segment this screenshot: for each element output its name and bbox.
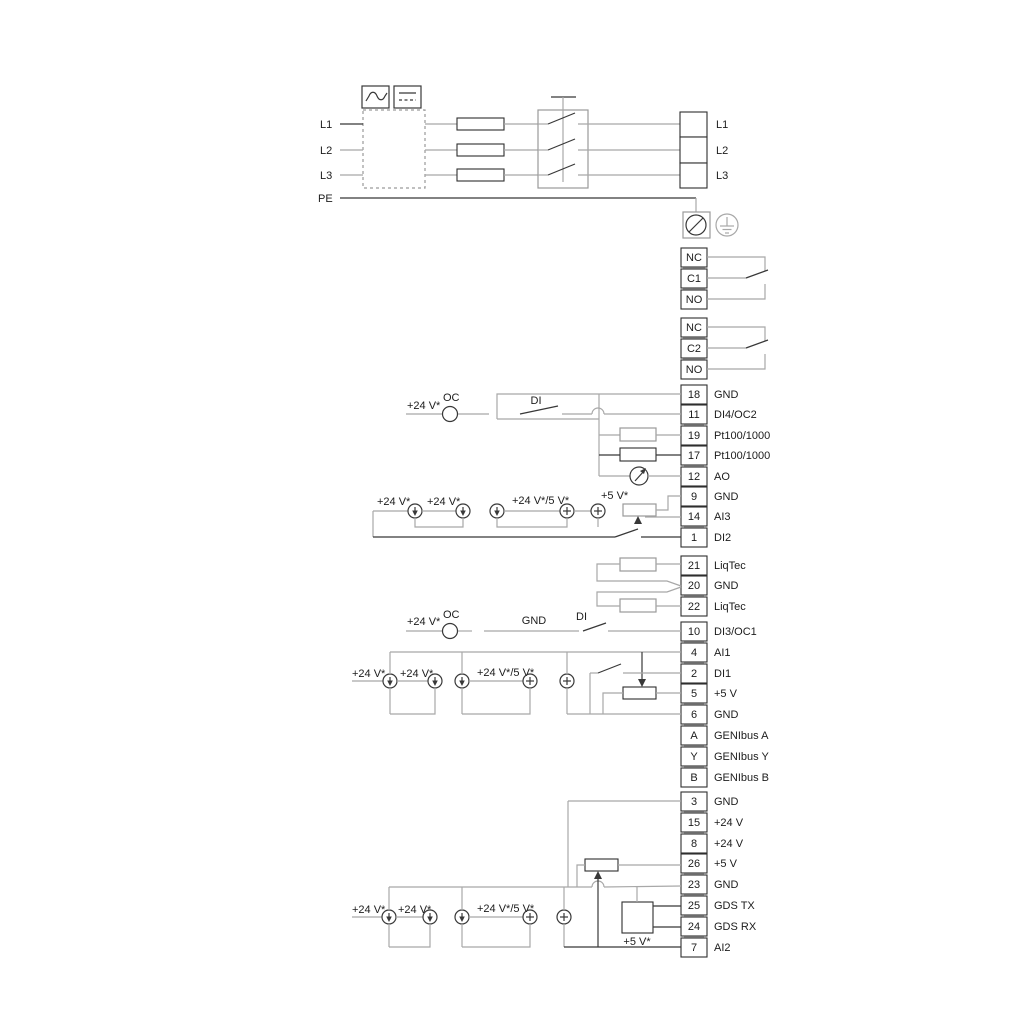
terminal-1-label: DI2 (714, 532, 731, 544)
terminal-y-label: GENIbus Y (714, 751, 769, 763)
current-source-icon (383, 674, 397, 688)
terminal-4-number: 4 (691, 647, 697, 659)
di-label: DI (531, 395, 542, 407)
wire-hop-icon (592, 408, 604, 414)
terminal-8-number: 8 (691, 838, 697, 850)
terminal-3-label: GND (714, 796, 739, 808)
label-l1-in: L1 (320, 119, 332, 131)
terminal-l1-label: L1 (716, 119, 728, 131)
current-source-icon (455, 674, 469, 688)
ac-wave-icon (366, 92, 387, 101)
terminal-6-number: 6 (691, 709, 697, 721)
terminal-y-number: Y (690, 751, 698, 763)
terminal-20-label: GND (714, 580, 739, 592)
terminal-22-number: 22 (688, 601, 700, 613)
plus24v-label: +24 V* (352, 904, 386, 916)
terminal-12-number: 12 (688, 471, 700, 483)
plus24v-5v-label: +24 V*/5 V* (477, 903, 535, 915)
earth-ground-icon (716, 214, 738, 236)
fuse-l1-icon (457, 118, 504, 130)
voltage-source-icon (560, 674, 574, 688)
liqtec-sensor-2-icon (620, 599, 656, 612)
terminal-7-number: 7 (691, 942, 697, 954)
relay1-nc-label: NC (686, 252, 702, 264)
terminal-4-label: AI1 (714, 647, 731, 659)
relay2-no-label: NO (686, 364, 703, 376)
converter-symbols (362, 86, 421, 108)
phase-wires-to-switch (504, 124, 538, 175)
di3-switch-icon (583, 623, 606, 631)
option-bracket (497, 518, 567, 527)
di-label: DI (576, 611, 587, 623)
di4-switch-icon (520, 406, 558, 414)
terminal-group-2: 21 LiqTec 20 GND 22 LiqTec (681, 556, 746, 616)
di3-oc1-circuit: +24 V* OC GND DI (406, 609, 681, 639)
liqtec-circuit (597, 558, 681, 612)
relay-2-block: NC C2 NO (681, 318, 768, 379)
terminal-9-label: GND (714, 491, 739, 503)
terminal-b-label: GENIbus B (714, 772, 769, 784)
open-collector-icon (443, 407, 458, 422)
terminal-26-label: +5 V (714, 858, 738, 870)
plus24v-label: +24 V* (407, 400, 441, 412)
option-bracket (389, 924, 430, 947)
terminal-11-number: 11 (688, 409, 699, 421)
terminal-25-number: 25 (688, 900, 700, 912)
terminal-24-label: GDS RX (714, 921, 757, 933)
terminal-group-1: 18 GND 11 DI4/OC2 19 Pt100/1000 17 Pt100… (681, 385, 770, 547)
terminal-23-number: 23 (688, 879, 700, 891)
relay2-contact-icon (707, 327, 768, 369)
plus24v-label: +24 V* (377, 496, 411, 508)
pt100-ao-circuit (599, 428, 681, 485)
pt100-sensor-2-icon (620, 448, 656, 461)
fuse-l3-icon (457, 169, 504, 181)
terminal-8-label: +24 V (714, 838, 744, 850)
di2-switch-icon (615, 529, 638, 537)
plus5v-label: +5 V* (623, 936, 651, 948)
liqtec-sensor-1-icon (620, 558, 656, 571)
gds-ai2-circuit: +5 V* +24 V* +24 V* +24 V*/5 V* (352, 801, 681, 948)
wiring-diagram-page: L1 L2 L3 PE (0, 0, 1024, 1024)
current-source-icon (490, 504, 504, 518)
oc-label: OC (443, 609, 460, 621)
wiper-arrow-icon (634, 516, 642, 524)
label-l2-in: L2 (320, 145, 332, 157)
plus24v-label: +24 V* (407, 616, 441, 628)
current-source-icon (382, 910, 396, 924)
terminal-19-number: 19 (688, 430, 700, 442)
label-l3-in: L3 (320, 170, 332, 182)
gnd-wire-label: GND (522, 615, 547, 627)
terminal-1-number: 1 (691, 532, 697, 544)
ai3-di2-circuit: +24 V* +24 V* +24 V*/5 V* +5 V* (373, 490, 681, 537)
terminal-l3-label: L3 (716, 170, 728, 182)
ai1-di1-circuit: +24 V* +24 V* +24 V*/5 V* (352, 652, 681, 714)
terminal-18-number: 18 (688, 389, 700, 401)
open-collector-icon (443, 624, 458, 639)
current-source-icon (428, 674, 442, 688)
option-bracket (462, 924, 530, 947)
terminal-19-label: Pt100/1000 (714, 430, 770, 442)
current-source-icon (455, 910, 469, 924)
terminal-18-label: GND (714, 389, 739, 401)
terminal-5-label: +5 V (714, 688, 738, 700)
potentiometer-icon (623, 687, 656, 699)
terminal-7-label: AI2 (714, 942, 731, 954)
phase-wires-to-fuses (425, 124, 457, 175)
current-source-icon (456, 504, 470, 518)
terminal-2-number: 2 (691, 668, 697, 680)
potentiometer-icon (585, 859, 618, 871)
plus24v-5v-label: +24 V*/5 V* (477, 667, 535, 679)
terminal-group-4: 3 GND 15 +24 V 8 +24 V 26 +5 V 23 GND 25… (681, 792, 757, 957)
option-bracket (462, 688, 530, 714)
phase-wires-to-terminals (578, 124, 680, 175)
di1-switch-icon (598, 664, 621, 673)
mains-terminal-block: L1 L2 L3 (680, 112, 728, 188)
oc-label: OC (443, 392, 460, 404)
phase-input-wires (340, 124, 363, 175)
terminal-9-number: 9 (691, 491, 697, 503)
potentiometer-icon (623, 504, 656, 516)
terminal-21-number: 21 (688, 560, 700, 572)
terminal-11-label: DI4/OC2 (714, 409, 757, 421)
terminal-25-label: GDS TX (714, 900, 755, 912)
terminal-23-label: GND (714, 879, 739, 891)
terminal-5-number: 5 (691, 688, 697, 700)
terminal-6-label: GND (714, 709, 739, 721)
terminal-17-number: 17 (688, 450, 700, 462)
plus5v-label: +5 V* (601, 490, 629, 502)
terminal-14-label: AI3 (714, 511, 731, 523)
terminal-15-label: +24 V (714, 817, 744, 829)
option-bracket (415, 518, 463, 527)
label-pe-in: PE (318, 193, 333, 205)
pe-wire (340, 198, 738, 238)
terminal-10-label: DI3/OC1 (714, 626, 757, 638)
plus24v-label: +24 V* (427, 496, 461, 508)
terminal-3-number: 3 (691, 796, 697, 808)
terminal-10-number: 10 (688, 626, 700, 638)
terminal-14-number: 14 (688, 511, 700, 523)
terminal-a-number: A (690, 730, 698, 742)
dc-symbol-box (394, 86, 421, 108)
fuse-l2-icon (457, 144, 504, 156)
relay2-nc-label: NC (686, 322, 702, 334)
plus24v-5v-label: +24 V*/5 V* (512, 495, 570, 507)
fuses (457, 118, 504, 181)
terminal-17-label: Pt100/1000 (714, 450, 770, 462)
plus24v-label: +24 V* (352, 668, 386, 680)
mains-input-labels: L1 L2 L3 PE (318, 119, 333, 205)
di-box (497, 394, 681, 419)
analog-output-meter-icon (630, 467, 648, 485)
terminal-b-number: B (690, 772, 697, 784)
terminal-2-label: DI1 (714, 668, 731, 680)
terminal-12-label: AO (714, 471, 730, 483)
relay1-contact-icon (707, 257, 768, 299)
relay-1-block: NC C1 NO (681, 248, 768, 309)
terminal-21-label: LiqTec (714, 560, 746, 572)
voltage-source-icon (557, 910, 571, 924)
option-bracket (390, 688, 435, 714)
current-source-icon (408, 504, 422, 518)
terminal-l2-label: L2 (716, 145, 728, 157)
gds-sensor-box (622, 902, 653, 933)
wiring-diagram: L1 L2 L3 PE (0, 0, 1024, 1024)
terminal-26-number: 26 (688, 858, 700, 870)
terminal-20-number: 20 (688, 580, 700, 592)
terminal-24-number: 24 (688, 921, 700, 933)
main-disconnect-switch (538, 97, 588, 188)
pt100-sensor-1-icon (620, 428, 656, 441)
filter-dashed-box (363, 110, 425, 188)
relay1-no-label: NO (686, 294, 703, 306)
terminal-22-label: LiqTec (714, 601, 746, 613)
relay1-c1-label: C1 (687, 273, 701, 285)
terminal-a-label: GENIbus A (714, 730, 769, 742)
plus24v-label: +24 V* (398, 904, 432, 916)
voltage-source-icon (591, 504, 605, 518)
terminal-group-3: 10 DI3/OC1 4 AI1 2 DI1 5 +5 V 6 GND A GE… (681, 622, 769, 787)
terminal-15-number: 15 (688, 817, 700, 829)
relay2-c2-label: C2 (687, 343, 701, 355)
wiper-arrow-icon (638, 679, 646, 687)
